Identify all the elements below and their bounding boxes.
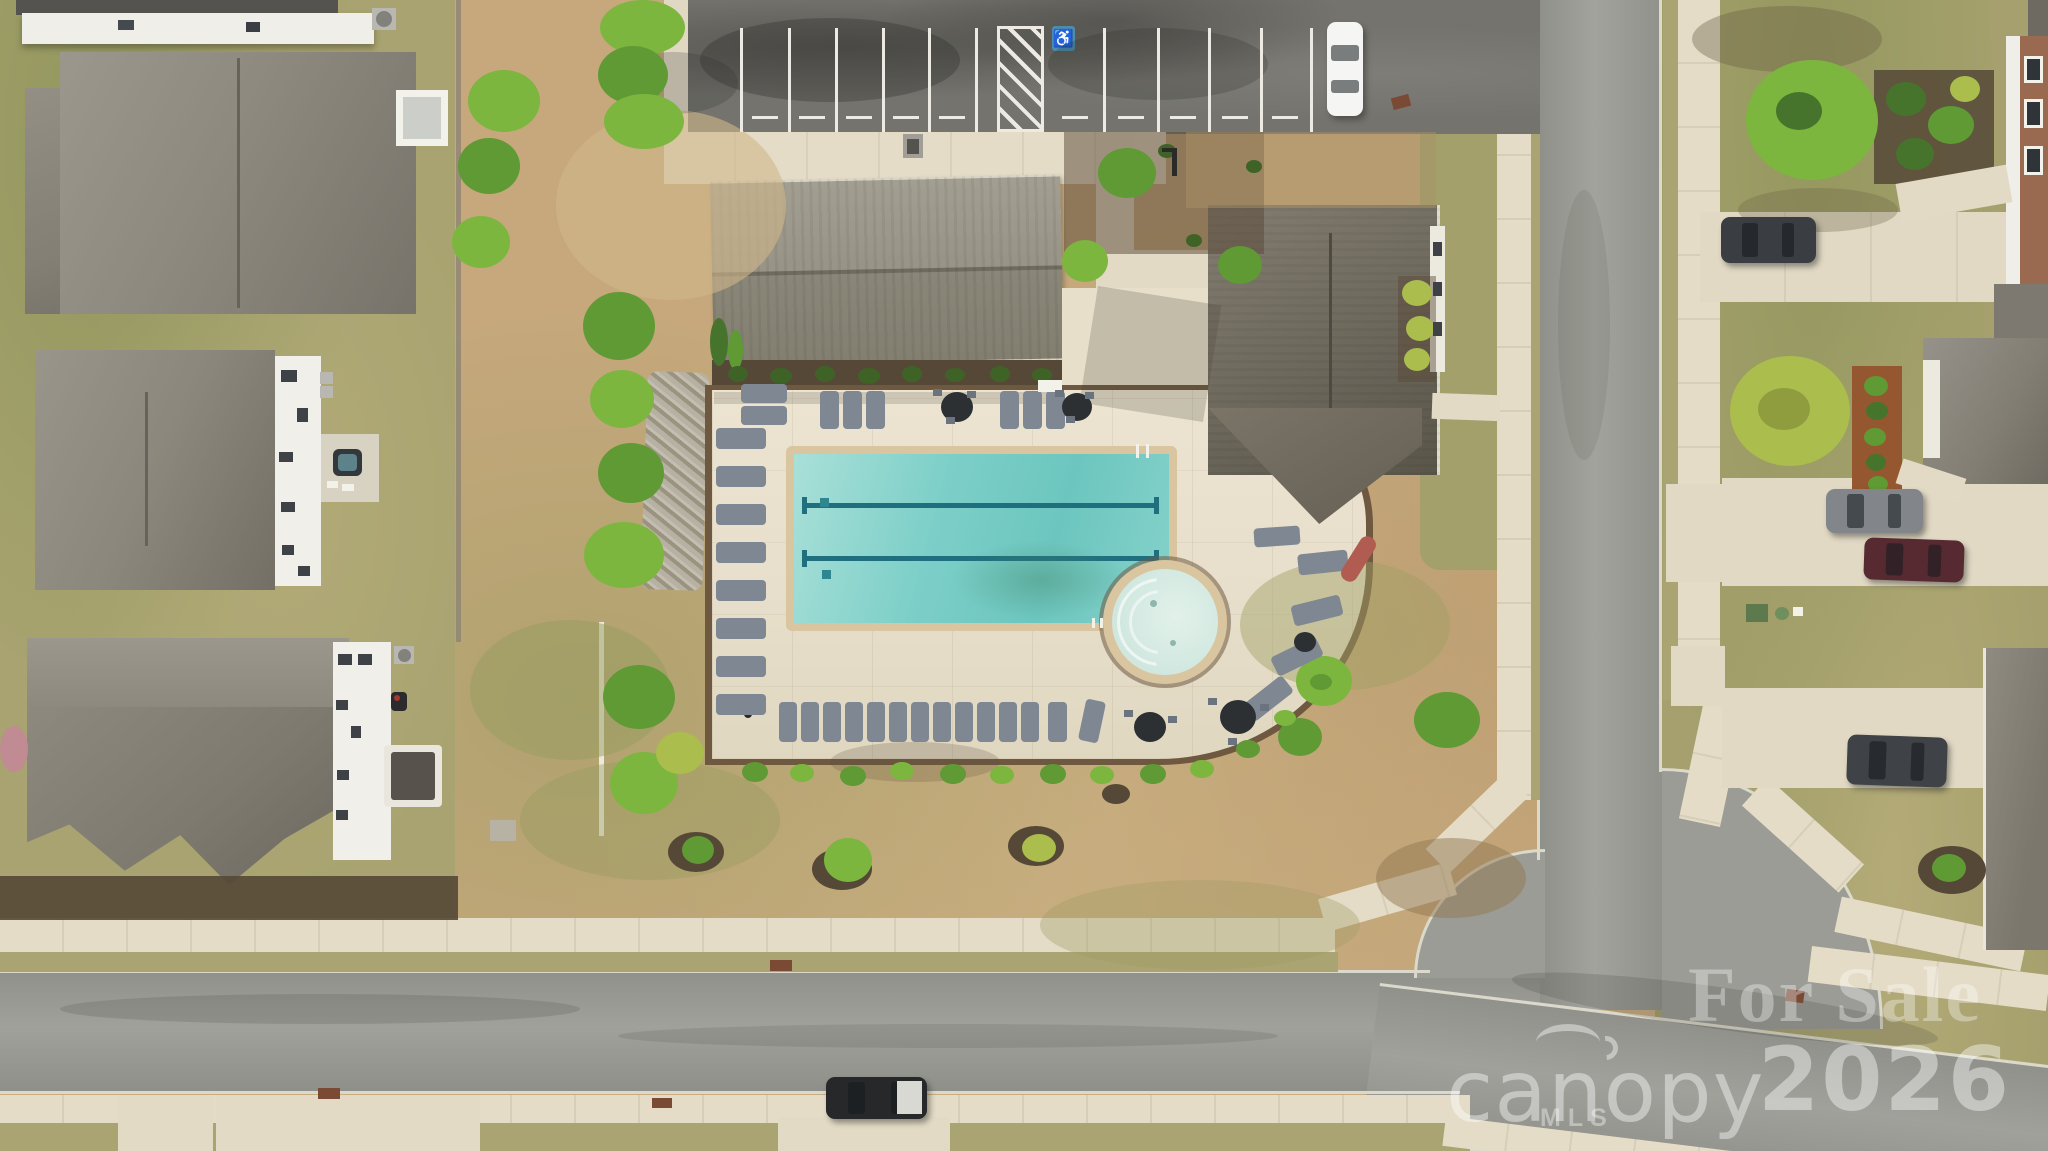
parking-line [882, 28, 885, 132]
parked-car-dark [1721, 217, 1816, 263]
shrub [1310, 674, 1332, 690]
parking-line [1157, 28, 1160, 132]
utility-box [1746, 604, 1768, 622]
window [2027, 102, 2040, 125]
shrub [858, 368, 880, 384]
cypress [728, 330, 743, 370]
lounge-chair [741, 384, 787, 403]
utility-box [1793, 607, 1803, 616]
tree [604, 94, 684, 149]
parking-line [740, 28, 743, 132]
shrub [990, 766, 1014, 784]
tree-shade [1776, 92, 1822, 130]
lounge-chair [845, 702, 863, 742]
lounge-chair [716, 542, 766, 563]
patio-chair [1055, 390, 1064, 397]
lounge-chair [716, 504, 766, 525]
grass-patch [1040, 880, 1360, 970]
tire-marks [1558, 190, 1610, 460]
lounge-chair [977, 702, 995, 742]
building-shadow [1080, 286, 1222, 422]
shrub [1866, 402, 1888, 420]
lounge-chair [716, 694, 766, 715]
storm-drain [652, 1098, 672, 1108]
window [281, 502, 295, 512]
storm-drain [770, 960, 792, 971]
lounge-chair [955, 702, 973, 742]
window [358, 654, 372, 665]
lounge-chair [716, 580, 766, 601]
parking-line [835, 28, 838, 132]
patio-chair [933, 389, 942, 396]
shrub [1040, 764, 1066, 784]
shrub [1866, 454, 1886, 471]
tree [1098, 148, 1156, 198]
window [338, 654, 352, 665]
window [298, 566, 310, 576]
grill-knob [394, 695, 400, 701]
storm-drain [1785, 989, 1804, 1003]
tree [452, 216, 510, 268]
shrub [1236, 740, 1260, 758]
lounge-chair [843, 391, 862, 429]
lounge-chair [933, 702, 951, 742]
lounge-chair [1048, 702, 1067, 742]
gazebo-interior [391, 752, 435, 800]
lounge-chair [801, 702, 819, 742]
parking-line [1103, 28, 1106, 132]
lounge-chair [716, 618, 766, 639]
parking-tick [939, 116, 965, 119]
patio-chair [1124, 710, 1133, 717]
patio-table [1294, 632, 1316, 652]
patio-chair [967, 391, 976, 398]
car-window [1910, 743, 1924, 781]
car-window [1782, 223, 1794, 258]
shrub [1864, 376, 1888, 396]
tree [656, 732, 704, 774]
car-window [1885, 543, 1903, 575]
pool-ladder [1100, 618, 1103, 628]
lamp-post [1172, 148, 1177, 176]
shrub [770, 368, 792, 384]
scene-details [0, 0, 2048, 1151]
shrub [1864, 428, 1886, 446]
parking-line [928, 28, 931, 132]
car-window [1331, 45, 1358, 62]
patio-chair [1085, 392, 1094, 399]
lounge-chair [1253, 525, 1300, 547]
shrub [902, 366, 922, 382]
pool-drain [822, 570, 831, 579]
lounge-chair [889, 702, 907, 742]
patio-chair [946, 417, 955, 424]
lounge-chair [1023, 391, 1042, 429]
window [351, 726, 361, 738]
window [1433, 242, 1442, 256]
patio-chair [1168, 716, 1177, 723]
lamp-arm [1162, 148, 1176, 152]
window [2027, 59, 2040, 80]
lounge-chair [716, 656, 766, 677]
shrub [1404, 348, 1430, 371]
patio-chair [1260, 704, 1269, 711]
ac-unit [320, 386, 333, 398]
shrub [890, 762, 914, 780]
patio-chair [342, 484, 354, 491]
car-window [848, 1082, 865, 1114]
ac-fan [376, 11, 392, 27]
shrub [815, 366, 835, 382]
tree [682, 836, 714, 864]
lounge-chair [820, 391, 839, 429]
lounge-chair [911, 702, 929, 742]
shrub [840, 766, 866, 786]
tree [603, 665, 675, 729]
lounge-chair [1000, 391, 1019, 429]
ac-fan [398, 649, 411, 662]
tree [468, 70, 540, 132]
tire-marks [1509, 958, 1941, 1059]
car-window [1847, 494, 1863, 527]
window [337, 770, 349, 780]
parking-line [788, 28, 791, 132]
skylight [246, 22, 260, 32]
parked-car-white [1327, 22, 1363, 116]
parking-tick [752, 116, 778, 119]
shrub [742, 762, 768, 782]
car-window [1868, 741, 1886, 780]
mulch-ring [1102, 784, 1130, 804]
car-window [1927, 545, 1941, 577]
lounge-chair [716, 466, 766, 487]
window [279, 452, 293, 462]
tree [590, 370, 654, 428]
pool-handrail [1136, 444, 1139, 458]
tree [584, 522, 664, 588]
shrub [940, 764, 966, 784]
shrub [1928, 106, 1974, 144]
patio-chair [1228, 738, 1237, 745]
lounge-chair [779, 702, 797, 742]
lounge-chair [1021, 702, 1039, 742]
shrub [1406, 316, 1434, 341]
mulch-bed [0, 876, 458, 920]
shrub [1190, 760, 1214, 778]
lounge-chair [823, 702, 841, 742]
car-window [1331, 80, 1358, 93]
shrub [1022, 834, 1056, 862]
window [281, 370, 297, 382]
patio-chair [1208, 698, 1217, 705]
shrub [1246, 160, 1262, 173]
shrub [728, 366, 748, 382]
pool-handrail [1146, 444, 1149, 458]
parking-tick [846, 116, 872, 119]
dirt-bed [1186, 132, 1436, 208]
umbrella-table [1220, 700, 1256, 734]
window [2027, 149, 2040, 172]
pool-drain [820, 498, 829, 507]
tire-marks [618, 1024, 1278, 1048]
parking-line [1310, 28, 1313, 132]
parking-tick [799, 116, 825, 119]
shrub [1090, 766, 1114, 784]
window [118, 20, 134, 30]
parking-line [1208, 28, 1211, 132]
tree [1062, 240, 1108, 282]
dead-branches [1376, 838, 1526, 918]
truck-bed-cover [897, 1081, 922, 1114]
shrub [1886, 82, 1926, 116]
car-window [1742, 223, 1758, 258]
window [282, 545, 294, 555]
shrub [1402, 280, 1432, 306]
parking-tick [1170, 116, 1196, 119]
tree [824, 838, 872, 882]
storm-drain [318, 1088, 340, 1099]
sign-plaque [1391, 94, 1411, 110]
tree-shadow [1692, 6, 1882, 72]
window [336, 810, 348, 820]
parked-car-maroon [1863, 537, 1964, 582]
lounge-chair [741, 406, 787, 425]
utility-box [1775, 607, 1789, 620]
shrub [990, 366, 1010, 382]
tree [1218, 246, 1262, 284]
tree [598, 443, 664, 503]
window [336, 700, 348, 710]
window [297, 408, 308, 422]
asphalt-stain [700, 18, 960, 102]
trash-can [907, 139, 919, 154]
parking-line [1260, 28, 1263, 132]
tree [458, 138, 520, 194]
balcony-floor [403, 97, 441, 139]
window [1433, 282, 1442, 296]
shrub [1186, 234, 1202, 247]
parked-suv [1826, 489, 1923, 533]
patio-chair [1066, 416, 1075, 423]
utility-pad [490, 820, 516, 841]
lounge-chair [866, 391, 885, 429]
parking-tick [1062, 116, 1088, 119]
shrub [1274, 710, 1296, 726]
ac-unit [320, 372, 333, 384]
lounge-chair [1078, 698, 1106, 743]
parking-tick [893, 116, 919, 119]
shrub [1140, 764, 1166, 784]
window [1433, 322, 1442, 336]
lounge-chair [999, 702, 1017, 742]
lounge-chair [716, 428, 766, 449]
umbrella-table [1134, 712, 1166, 742]
tire-marks [60, 994, 580, 1024]
shrub [1950, 76, 1980, 102]
pool-ladder [1092, 618, 1095, 628]
flowering-bush [0, 726, 28, 772]
tree [1414, 692, 1480, 748]
parking-tick [1222, 116, 1248, 119]
clubhouse-walk [1432, 393, 1501, 421]
cypress [710, 318, 728, 366]
aerial-photo: ♿ For [0, 0, 2048, 1151]
hot-tub-water [338, 454, 357, 471]
car-window [1888, 494, 1901, 527]
parking-tick [1118, 116, 1144, 119]
parked-car-charcoal [1846, 734, 1948, 787]
shrub [790, 764, 814, 782]
patio-chair [327, 481, 338, 488]
lounge-chair [867, 702, 885, 742]
tree-shade [1758, 388, 1810, 430]
parking-tick [1272, 116, 1298, 119]
shrub [1932, 854, 1966, 882]
shrub [1896, 138, 1934, 170]
tree [583, 292, 655, 360]
shrub [945, 368, 965, 382]
pool-speck [1150, 600, 1157, 607]
pool-speck [1170, 640, 1176, 646]
parking-line [975, 28, 978, 132]
